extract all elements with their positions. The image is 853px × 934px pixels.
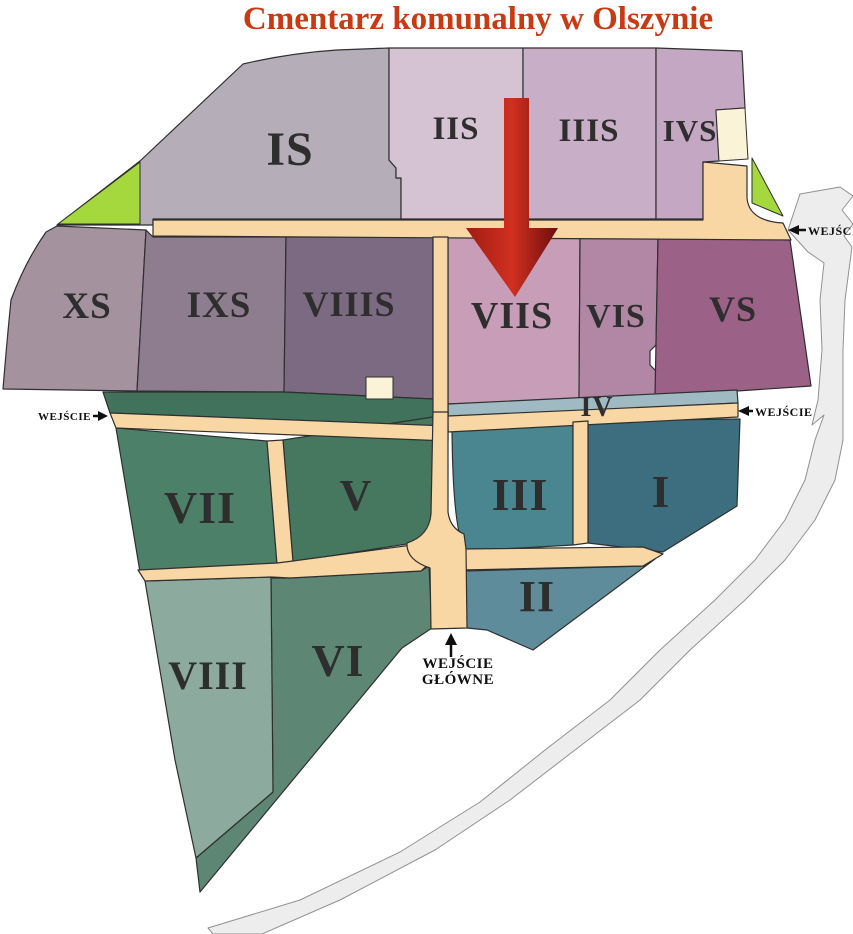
arrow-left-head-icon xyxy=(738,406,749,416)
label-VIIIS: VIIIS xyxy=(302,284,395,324)
entrance-east-upper-label: WEJŚCIE xyxy=(808,224,853,238)
building-viiis xyxy=(366,377,393,399)
cemetery-map: IS IIS IIIS IVS XS IXS VIIIS VIIS VIS VS… xyxy=(0,0,853,934)
arrow-up-head-icon xyxy=(445,633,457,645)
section-II xyxy=(465,559,655,650)
label-VI: VI xyxy=(311,635,364,686)
road-iii-i-divider xyxy=(573,421,588,545)
road-vertical-upper xyxy=(433,237,448,416)
entrance-east-lower: WEJŚCIE xyxy=(738,405,813,419)
entrance-east-lower-label: WEJŚCIE xyxy=(755,405,813,419)
label-II: II xyxy=(519,572,555,621)
label-III: III xyxy=(492,469,549,520)
label-IIS: IIS xyxy=(432,111,479,147)
label-VIII: VIII xyxy=(168,653,248,698)
label-IXS: IXS xyxy=(187,285,252,326)
label-VS: VS xyxy=(709,289,757,329)
label-VII: VII xyxy=(164,482,236,533)
label-IIIS: IIIS xyxy=(559,113,620,149)
entrance-west-label: WEJŚCIE xyxy=(38,411,91,423)
greenery-east xyxy=(752,158,783,216)
entrance-main-label-line1: WEJŚCIE xyxy=(422,655,493,672)
entrance-main-label-line2: GŁÓWNE xyxy=(422,671,494,688)
entrance-main: WEJŚCIE GŁÓWNE xyxy=(422,633,494,688)
label-IS: IS xyxy=(266,123,313,176)
arrow-right-head-icon xyxy=(98,411,108,421)
label-VIS: VIS xyxy=(586,298,646,335)
building-northeast xyxy=(716,108,748,161)
entrance-west: WEJŚCIE xyxy=(38,411,108,423)
label-IVS: IVS xyxy=(663,113,718,148)
greenery-west xyxy=(58,162,140,224)
road-ii-top xyxy=(462,547,663,570)
label-XS: XS xyxy=(62,286,111,327)
label-V: V xyxy=(340,471,373,520)
label-I: I xyxy=(652,466,671,517)
label-IV: IV xyxy=(580,392,613,423)
label-VIIS: VIIS xyxy=(471,295,553,337)
page-title: Cmentarz komunalny w Olszynie xyxy=(243,1,713,37)
